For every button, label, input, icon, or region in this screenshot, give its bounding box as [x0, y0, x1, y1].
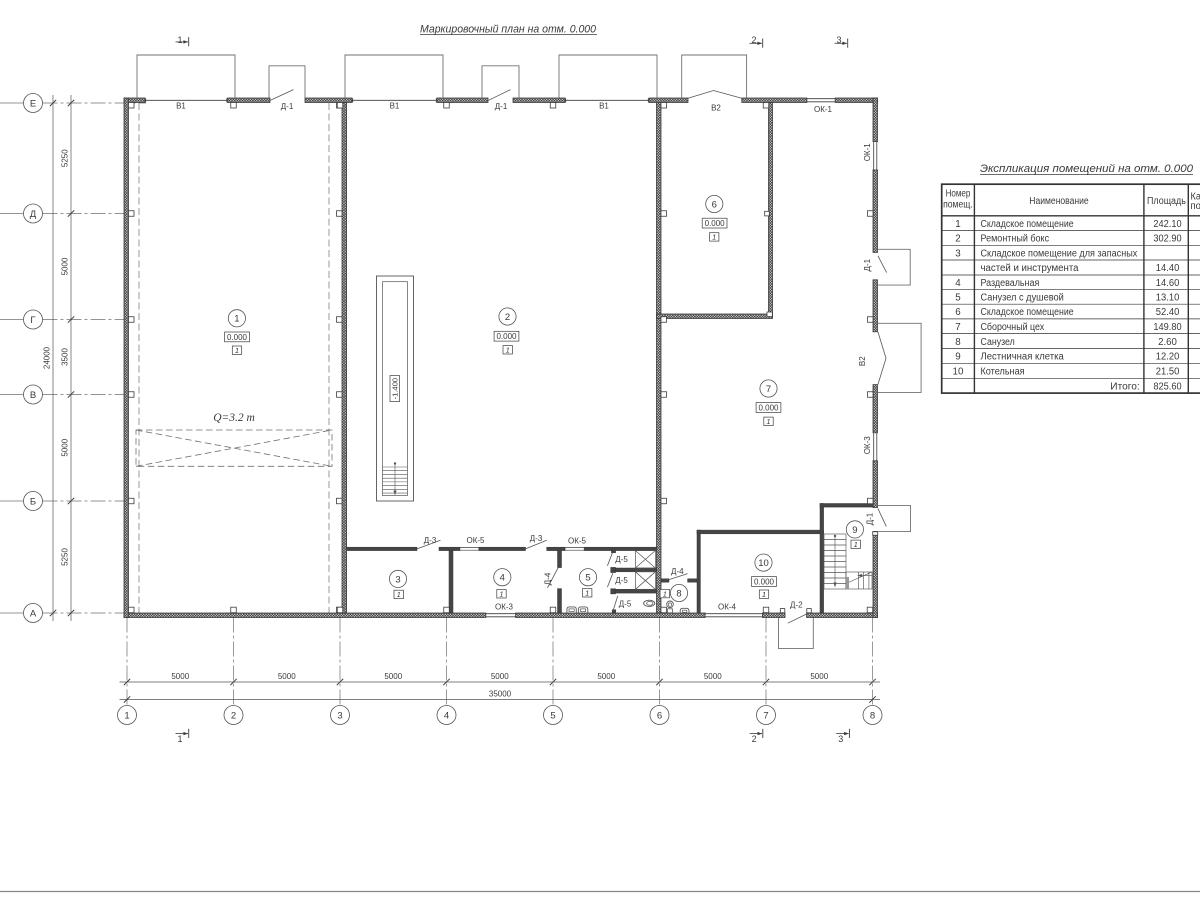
svg-text:1: 1 — [766, 417, 770, 426]
svg-text:13.10: 13.10 — [1156, 293, 1180, 304]
svg-text:5000: 5000 — [61, 257, 70, 275]
svg-text:9: 9 — [852, 525, 857, 536]
svg-text:частей и инструмента: частей и инструмента — [981, 263, 1080, 274]
svg-text:2: 2 — [505, 312, 510, 323]
svg-text:5: 5 — [550, 710, 555, 721]
svg-text:А: А — [30, 608, 37, 619]
svg-text:Д-5: Д-5 — [615, 555, 628, 564]
svg-text:0.000: 0.000 — [496, 332, 517, 341]
svg-text:1: 1 — [854, 540, 858, 549]
svg-text:24000: 24000 — [43, 346, 52, 369]
svg-text:5: 5 — [955, 293, 961, 304]
svg-text:Раздевальная: Раздевальная — [981, 278, 1040, 289]
svg-text:В1: В1 — [176, 101, 186, 110]
svg-text:242.10: 242.10 — [1153, 219, 1182, 230]
svg-text:3: 3 — [395, 574, 400, 585]
svg-text:1: 1 — [712, 233, 716, 242]
svg-text:14.60: 14.60 — [1156, 278, 1180, 289]
svg-text:В2: В2 — [858, 356, 867, 366]
svg-text:В: В — [30, 390, 36, 401]
svg-text:10: 10 — [758, 558, 769, 569]
svg-text:В2: В2 — [711, 104, 721, 113]
svg-text:35000: 35000 — [489, 690, 512, 699]
svg-text:Д-4: Д-4 — [543, 572, 552, 585]
svg-text:1: 1 — [177, 734, 182, 744]
svg-text:Q=3.2 т: Q=3.2 т — [213, 412, 255, 424]
svg-text:2: 2 — [955, 234, 960, 245]
svg-text:5000: 5000 — [810, 672, 828, 681]
svg-text:Котельная: Котельная — [981, 367, 1025, 378]
svg-text:1: 1 — [177, 35, 182, 45]
svg-text:1: 1 — [955, 219, 960, 230]
svg-text:0.000: 0.000 — [227, 333, 248, 342]
svg-text:ОК-3: ОК-3 — [863, 436, 872, 455]
svg-text:Санузел с душевой: Санузел с душевой — [981, 293, 1064, 304]
svg-text:1: 1 — [235, 346, 239, 355]
svg-text:5000: 5000 — [491, 672, 509, 681]
svg-text:7: 7 — [955, 322, 960, 333]
svg-text:Б: Б — [30, 496, 36, 507]
svg-text:5000: 5000 — [171, 672, 189, 681]
svg-text:4: 4 — [955, 278, 961, 289]
svg-text:7: 7 — [763, 710, 768, 721]
svg-text:5250: 5250 — [61, 548, 70, 566]
svg-text:14.40: 14.40 — [1156, 263, 1180, 274]
svg-text:3: 3 — [337, 710, 342, 721]
svg-text:ОК-1: ОК-1 — [814, 105, 833, 114]
svg-text:5000: 5000 — [704, 672, 722, 681]
svg-text:Д-4: Д-4 — [671, 567, 684, 576]
svg-text:10: 10 — [953, 367, 964, 378]
svg-text:6: 6 — [712, 199, 717, 210]
svg-text:Экспликация помещений на отм.: Экспликация помещений на отм. 0.000 — [980, 163, 1194, 175]
svg-text:Д-3: Д-3 — [530, 534, 543, 543]
svg-text:Д-2: Д-2 — [790, 600, 803, 609]
svg-text:Санузел: Санузел — [981, 337, 1016, 348]
svg-text:302.90: 302.90 — [1153, 234, 1182, 245]
svg-text:помещ.: помещ. — [943, 199, 973, 210]
svg-text:2: 2 — [231, 710, 236, 721]
svg-text:-1.400: -1.400 — [390, 378, 399, 400]
svg-text:0.000: 0.000 — [705, 219, 726, 228]
svg-text:ОК-5: ОК-5 — [568, 536, 587, 545]
svg-text:Складское помещение для запасн: Складское помещение для запасных — [981, 248, 1138, 259]
svg-text:1: 1 — [663, 589, 667, 598]
svg-text:5000: 5000 — [384, 672, 402, 681]
svg-text:Ремонтный бокс: Ремонтный бокс — [981, 234, 1050, 245]
svg-text:0.000: 0.000 — [758, 403, 779, 412]
svg-text:Д-1: Д-1 — [866, 512, 875, 525]
svg-text:Сборочный цех: Сборочный цех — [981, 322, 1045, 333]
svg-text:3: 3 — [836, 35, 841, 45]
svg-text:5000: 5000 — [278, 672, 296, 681]
svg-text:8: 8 — [955, 337, 961, 348]
svg-text:ОК-3: ОК-3 — [495, 603, 514, 612]
svg-text:2: 2 — [751, 35, 756, 45]
svg-text:Д-1: Д-1 — [495, 102, 508, 111]
svg-text:8: 8 — [870, 710, 875, 721]
svg-text:4: 4 — [500, 573, 505, 584]
svg-text:Г: Г — [30, 315, 35, 326]
svg-text:4: 4 — [444, 710, 449, 721]
svg-text:825.60: 825.60 — [1153, 381, 1182, 392]
svg-text:Е: Е — [30, 98, 36, 109]
svg-text:9: 9 — [955, 352, 960, 363]
svg-text:Д-1: Д-1 — [281, 102, 294, 111]
svg-text:1: 1 — [585, 589, 589, 598]
svg-text:2: 2 — [752, 734, 757, 744]
svg-text:5250: 5250 — [61, 149, 70, 167]
svg-text:по: по — [1191, 201, 1200, 212]
svg-text:3: 3 — [838, 734, 843, 744]
svg-text:5000: 5000 — [61, 438, 70, 456]
svg-text:1: 1 — [499, 590, 503, 599]
svg-text:1: 1 — [506, 346, 510, 355]
svg-text:Итого:: Итого: — [1110, 381, 1139, 392]
svg-text:Д-5: Д-5 — [615, 576, 628, 585]
svg-text:7: 7 — [766, 384, 771, 395]
svg-text:ОК-1: ОК-1 — [863, 143, 872, 162]
svg-text:52.40: 52.40 — [1156, 307, 1180, 318]
svg-text:1: 1 — [124, 710, 129, 721]
svg-text:1: 1 — [397, 590, 401, 599]
svg-text:5: 5 — [585, 573, 590, 584]
svg-text:6: 6 — [657, 710, 662, 721]
svg-text:В1: В1 — [390, 101, 400, 110]
svg-text:3500: 3500 — [61, 348, 70, 366]
svg-text:Площадь: Площадь — [1147, 196, 1186, 207]
svg-text:Д-5: Д-5 — [619, 599, 632, 608]
svg-text:21.50: 21.50 — [1156, 367, 1180, 378]
svg-text:3: 3 — [955, 248, 961, 259]
svg-text:1: 1 — [762, 590, 766, 599]
svg-text:Наименование: Наименование — [1029, 196, 1089, 207]
svg-text:Д-3: Д-3 — [424, 536, 437, 545]
svg-text:Лестничная клетка: Лестничная клетка — [981, 352, 1065, 363]
svg-text:В1: В1 — [599, 101, 609, 110]
svg-text:Складское помещение: Складское помещение — [981, 219, 1075, 230]
svg-text:2.60: 2.60 — [1158, 337, 1177, 348]
svg-text:12.20: 12.20 — [1156, 352, 1180, 363]
svg-text:Номер: Номер — [946, 189, 971, 200]
svg-text:8: 8 — [676, 588, 681, 599]
svg-text:Маркировочный план на отм. 0.0: Маркировочный план на отм. 0.000 — [420, 23, 597, 35]
svg-text:Д: Д — [30, 209, 37, 220]
svg-text:149.80: 149.80 — [1153, 322, 1182, 333]
svg-text:0.000: 0.000 — [754, 577, 775, 586]
svg-text:1: 1 — [234, 314, 239, 325]
svg-text:Д-1: Д-1 — [863, 258, 872, 271]
svg-text:ОК-5: ОК-5 — [467, 536, 486, 545]
svg-text:Складское помещение: Складское помещение — [981, 307, 1075, 318]
svg-text:ОК-4: ОК-4 — [718, 602, 737, 611]
svg-text:6: 6 — [955, 307, 961, 318]
svg-text:5000: 5000 — [597, 672, 615, 681]
